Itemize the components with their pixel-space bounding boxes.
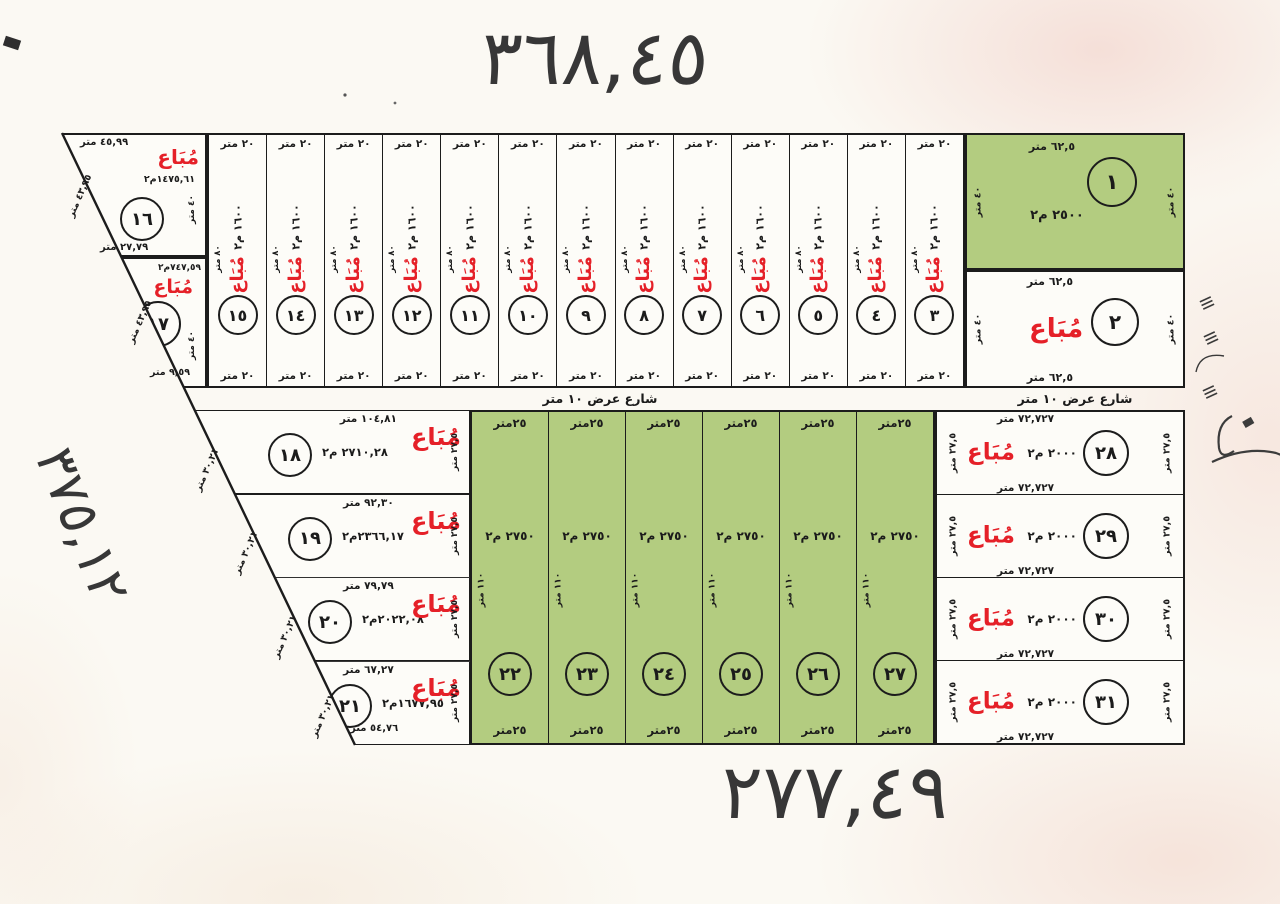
- sold-stamp: مُبَاع: [229, 256, 247, 294]
- sold-stamp: مُبَاع: [967, 691, 1015, 714]
- area-label: ٢٥٠٠ م٢: [987, 209, 1127, 222]
- area-label: ١٦٠٠ م٢: [639, 204, 650, 249]
- depth-label: ٨٠ متر: [678, 245, 687, 272]
- plot-30: ٣٠ ٢٠٠٠ م٢ مُبَاع ٢٧,٥ متر ٢٧,٥ متر ٧٢,٧…: [937, 577, 1183, 660]
- area-label: ٢٧٥٠ م٢: [549, 530, 625, 542]
- slant-length-label: ٤٣,٩٥ متر: [66, 173, 95, 219]
- area-label: ٢٧٥٠ م٢: [857, 530, 933, 542]
- plot-15: ٢٠ متر ١٦٠٠ م٢ مُبَاع ٨٠ متر ١٥ ٢٠ متر: [209, 135, 266, 386]
- slant-length-label: ٣٠,٢١ متر: [309, 693, 338, 739]
- plot-number-badge: ١٤: [276, 295, 316, 335]
- length-label: ٢٠ متر: [441, 139, 498, 150]
- length-label: ٢٠ متر: [848, 139, 905, 150]
- length-label: ٢٠ متر: [499, 139, 556, 150]
- area-label: ١٦٠٠ م٢: [871, 204, 882, 249]
- area-label: ٢٧١٠,٢٨ م٢: [322, 447, 388, 459]
- length-label: ٦٢,٥ متر: [985, 276, 1115, 287]
- sold-stamp: مُبَاع: [967, 608, 1015, 631]
- length-label: ٢٠ متر: [732, 371, 789, 382]
- side-length-label: ٤٠ متر: [188, 195, 197, 224]
- plot-31: ٣١ ٢٠٠٠ م٢ مُبَاع ٢٧,٥ متر ٢٧,٥ متر ٧٢,٧…: [937, 660, 1183, 743]
- length-label: ٢٠ متر: [732, 139, 789, 150]
- length-label: ٢٥متر: [703, 418, 779, 430]
- plot-number-badge: ٢٨: [1083, 430, 1129, 476]
- length-label: ٧٢,٧٢٧ متر: [937, 483, 1114, 494]
- length-label: ٢٠ متر: [383, 139, 440, 150]
- sold-stamp: مُبَاع: [809, 256, 827, 294]
- depth-label: ٨٠ متر: [562, 245, 571, 272]
- sold-stamp: مُبَاع: [925, 256, 943, 294]
- side-length-label: ٤٠ متر: [1167, 314, 1177, 345]
- side-length-label: ٢٧,٥ متر: [450, 600, 460, 638]
- length-label: ٢٠ متر: [848, 371, 905, 382]
- plot-number-badge: ٢١: [328, 684, 372, 728]
- length-label: ٧٢,٧٢٧ متر: [937, 649, 1114, 660]
- plot-number-badge: ٥: [798, 295, 838, 335]
- length-label: ٢٠ متر: [325, 371, 382, 382]
- sold-stamp: مُبَاع: [345, 256, 363, 294]
- plot-26: ٢٥متر ٢٧٥٠ م٢ ١١٠ متر ٢٦ ٢٥متر: [779, 412, 856, 743]
- south-boundary-length: ٢٧٧,٤٩: [632, 754, 1037, 830]
- area-label: ٢٠٠٠ م٢: [1027, 447, 1077, 459]
- top-strip-plots: ٢٠ متر ١٦٠٠ م٢ مُبَاع ٨٠ متر ١٥ ٢٠ متر ٢…: [207, 133, 965, 388]
- area-label: ١٦٠٠ م٢: [697, 204, 708, 249]
- plot-number-badge: ١٣: [334, 295, 374, 335]
- length-label: ٢٠ متر: [790, 139, 847, 150]
- depth-label: ٨٠ متر: [446, 245, 455, 272]
- depth-label: ٨٠ متر: [736, 245, 745, 272]
- green-strip-plots: ٢٥متر ٢٧٥٠ م٢ ١١٠ متر ٢٢ ٢٥متر ٢٥متر ٢٧٥…: [470, 410, 935, 745]
- depth-label: ٨٠ متر: [620, 245, 629, 272]
- length-label: ٢٥متر: [780, 725, 856, 737]
- sold-stamp: مُبَاع: [635, 256, 653, 294]
- side-length-label: ٢٧,٥ متر: [948, 682, 958, 722]
- subdivision-plan: ٣٦٨,٤٥ ٢٧٧,٤٩ ٣٧٥,١٢ ٢٠ متر ١٦٠٠ م٢ مُبَ…: [0, 0, 1280, 904]
- area-label: ٢٠٠٠ م٢: [1027, 613, 1077, 625]
- side-length-label: ٤٠ متر: [188, 331, 197, 360]
- plot-number-badge: ٨: [624, 295, 664, 335]
- handwritten-mark: [343, 93, 346, 96]
- length-label: ٢٠ متر: [557, 139, 614, 150]
- length-label: ٢٥متر: [549, 418, 625, 430]
- plot-11: ٢٠ متر ١٦٠٠ م٢ مُبَاع ٨٠ متر ١١ ٢٠ متر: [440, 135, 498, 386]
- length-label: ٢٠ متر: [383, 371, 440, 382]
- sold-stamp: مُبَاع: [693, 256, 711, 294]
- sold-stamp: مُبَاع: [157, 147, 199, 167]
- area-label: ٢٧٥٠ م٢: [703, 530, 779, 542]
- area-label: ١٦٠٠ م٢: [290, 204, 301, 249]
- plot-number-badge: ٧: [682, 295, 722, 335]
- length-label: ٢٧,٧٩ متر: [100, 243, 148, 253]
- plot-number-badge: ٢٧: [873, 652, 917, 696]
- length-label: ٦٢,٥ متر: [987, 141, 1117, 152]
- plot-number-badge: ١١: [450, 295, 490, 335]
- plot-28: ٧٢,٧٢٧ متر ٢٨ ٢٠٠٠ م٢ مُبَاع ٢٧,٥ متر ٢٧…: [937, 412, 1183, 494]
- area-label: ١٦٠٠ م٢: [929, 204, 940, 249]
- depth-label: ٨٠ متر: [504, 245, 513, 272]
- length-label: ٢٠ متر: [267, 139, 324, 150]
- plot-27: ٢٥متر ٢٧٥٠ م٢ ١١٠ متر ٢٧ ٢٥متر: [856, 412, 933, 743]
- depth-label: ١١٠ متر: [555, 573, 564, 607]
- plot-number-badge: ١٢: [392, 295, 432, 335]
- side-length-label: ٢٧,٥ متر: [1162, 599, 1172, 639]
- sold-stamp: مُبَاع: [967, 442, 1015, 465]
- side-length-label: ٢٧,٥ متر: [1162, 516, 1172, 556]
- length-label: ٢٠ متر: [790, 371, 847, 382]
- plot-number-badge: ٢٦: [796, 652, 840, 696]
- sold-stamp: مُبَاع: [403, 256, 421, 294]
- plot-9: ٢٠ متر ١٦٠٠ م٢ مُبَاع ٨٠ متر ٩ ٢٠ متر: [556, 135, 614, 386]
- plot-4: ٢٠ متر ١٦٠٠ م٢ مُبَاع ٨٠ متر ٤ ٢٠ متر: [847, 135, 905, 386]
- plot-number-badge: ٣٠: [1083, 596, 1129, 642]
- slant-length-label: ٣٠,٢١ متر: [271, 614, 300, 660]
- handwritten-tally-marks: [1196, 297, 1224, 398]
- area-label: ٧٤٧,٥٩م٢: [158, 264, 201, 273]
- depth-label: ٨٠ متر: [214, 245, 223, 272]
- plot-number-badge: ٢٠: [308, 600, 352, 644]
- area-label: ١٦٠٠ م٢: [755, 204, 766, 249]
- sold-stamp: مُبَاع: [1029, 316, 1083, 342]
- plot-25: ٢٥متر ٢٧٥٠ م٢ ١١٠ متر ٢٥ ٢٥متر: [702, 412, 779, 743]
- slant-length-label: ٣٠,٢١ متر: [232, 530, 261, 576]
- plot-number-badge: ٣: [914, 295, 954, 335]
- length-label: ٢٠ متر: [674, 371, 731, 382]
- length-label: ٧٢,٧٢٧ متر: [937, 732, 1114, 743]
- north-boundary-length: ٣٦٨,٤٥: [392, 20, 799, 96]
- plot-20: ٧٩,٧٩ متر ٢٠ ٢٠٢٢,٠٨م٢ مُبَاع ٢٧,٥ متر: [195, 577, 470, 661]
- area-label: ٢٣٦٦,١٧م٢: [342, 531, 404, 543]
- sold-stamp: مُبَاع: [867, 256, 885, 294]
- depth-label: ١١٠ متر: [786, 573, 795, 607]
- plot-number-badge: ٢٥: [719, 652, 763, 696]
- plot-5: ٢٠ متر ١٦٠٠ م٢ مُبَاع ٨٠ متر ٥ ٢٠ متر: [789, 135, 847, 386]
- plot-number-badge: ١٥: [218, 295, 258, 335]
- side-length-label: ٢٧,٥ متر: [948, 433, 958, 473]
- plot-number-badge: ١: [1087, 157, 1137, 207]
- plot-6: ٢٠ متر ١٦٠٠ م٢ مُبَاع ٨٠ متر ٦ ٢٠ متر: [731, 135, 789, 386]
- sold-stamp: مُبَاع: [967, 525, 1015, 548]
- slant-length-label: ٤٣,٩٥ متر: [126, 299, 155, 345]
- depth-label: ٨٠ متر: [388, 245, 397, 272]
- sold-stamp: مُبَاع: [153, 278, 193, 297]
- plot-2: ٦٢,٥ متر ٢ مُبَاع ٤٠ متر ٤٠ متر ٦٢,٥ متر: [965, 270, 1185, 388]
- plot-number-badge: ٤: [856, 295, 896, 335]
- side-length-label: ٢٧,٥ متر: [948, 599, 958, 639]
- length-label: ٢٥متر: [626, 418, 702, 430]
- handwritten-mark: [394, 102, 397, 105]
- side-length-label: ٢٧,٥ متر: [948, 516, 958, 556]
- plot-number-badge: ٩: [566, 295, 606, 335]
- length-label: ٢٥متر: [549, 725, 625, 737]
- side-length-label: ٢٧,٥ متر: [450, 433, 460, 471]
- area-label: ٢٧٥٠ م٢: [780, 530, 856, 542]
- length-label: ٢٥متر: [472, 725, 548, 737]
- plot-number-badge: ٢٩: [1083, 513, 1129, 559]
- length-label: ٢٠ متر: [616, 139, 673, 150]
- length-label: ٤٥,٩٩ متر: [80, 138, 128, 148]
- plot-8: ٢٠ متر ١٦٠٠ م٢ مُبَاع ٨٠ متر ٨ ٢٠ متر: [615, 135, 673, 386]
- length-label: ٢٠ متر: [267, 371, 324, 382]
- length-label: ٢٥متر: [857, 725, 933, 737]
- area-label: ١٦٠٠ م٢: [813, 204, 824, 249]
- plot-14: ٢٠ متر ١٦٠٠ م٢ مُبَاع ٨٠ متر ١٤ ٢٠ متر: [266, 135, 324, 386]
- plot-10: ٢٠ متر ١٦٠٠ م٢ مُبَاع ٨٠ متر ١٠ ٢٠ متر: [498, 135, 556, 386]
- plot-23: ٢٥متر ٢٧٥٠ م٢ ١١٠ متر ٢٣ ٢٥متر: [548, 412, 625, 743]
- length-label: ٢٠ متر: [441, 371, 498, 382]
- plot-number-badge: ١٠: [508, 295, 548, 335]
- street-label: شارع عرض ١٠ متر: [980, 391, 1170, 406]
- length-label: ٢٠ متر: [616, 371, 673, 382]
- side-length-label: ٢٧,٥ متر: [1162, 433, 1172, 473]
- depth-label: ٨٠ متر: [272, 245, 281, 272]
- area-label: ٢٠٠٠ م٢: [1027, 696, 1077, 708]
- plot-29: ٢٩ ٢٠٠٠ م٢ مُبَاع ٢٧,٥ متر ٢٧,٥ متر ٧٢,٧…: [937, 494, 1183, 577]
- side-length-label: ٤٠ متر: [974, 314, 984, 345]
- length-label: ٦٢,٥ متر: [985, 372, 1115, 383]
- length-label: ٥٤,٧٦ متر: [350, 724, 398, 734]
- length-label: ٢٠ متر: [557, 371, 614, 382]
- length-label: ٢٠ متر: [906, 139, 963, 150]
- length-label: ٩,٥٩ متر: [150, 368, 190, 378]
- depth-label: ٨٠ متر: [795, 245, 804, 272]
- side-length-label: ٢٧,٥ متر: [1162, 682, 1172, 722]
- slant-length-label: ٣٠,٢١ متر: [193, 447, 222, 493]
- side-length-label: ٢٧,٥ متر: [450, 684, 460, 722]
- side-length-label: ٢٧,٥ متر: [450, 517, 460, 555]
- depth-label: ٨٠ متر: [911, 245, 920, 272]
- plot-22: ٢٥متر ٢٧٥٠ م٢ ١١٠ متر ٢٢ ٢٥متر: [472, 412, 548, 743]
- handwritten-mark: [1212, 416, 1280, 462]
- length-label: ٧٢,٧٢٧ متر: [937, 566, 1114, 577]
- length-label: ٢٠ متر: [674, 139, 731, 150]
- area-label: ١٦٠٠ م٢: [581, 204, 592, 249]
- length-label: ٢٠ متر: [209, 139, 266, 150]
- length-label: ٢٠ متر: [325, 139, 382, 150]
- area-label: ١٦٠٠ م٢: [464, 204, 475, 249]
- depth-label: ٨٠ متر: [853, 245, 862, 272]
- area-label: ١٦٠٠ م٢: [232, 204, 243, 249]
- handwritten-mark: [3, 36, 21, 50]
- plot-24: ٢٥متر ٢٧٥٠ م٢ ١١٠ متر ٢٤ ٢٥متر: [625, 412, 702, 743]
- area-label: ٢٠٠٠ م٢: [1027, 530, 1077, 542]
- sold-stamp: مُبَاع: [461, 256, 479, 294]
- right-block-plots: ٧٢,٧٢٧ متر ٢٨ ٢٠٠٠ م٢ مُبَاع ٢٧,٥ متر ٢٧…: [935, 410, 1185, 745]
- street-label: شارع عرض ١٠ متر: [480, 391, 720, 406]
- side-length-label: ٤٠ متر: [1167, 186, 1177, 217]
- plot-number-badge: ٦: [740, 295, 780, 335]
- length-label: ٢٥متر: [857, 418, 933, 430]
- length-label: ٢٠ متر: [906, 371, 963, 382]
- plot-number-badge: ٢٤: [642, 652, 686, 696]
- area-label: ١٦٠٠ م٢: [522, 204, 533, 249]
- plot-number-badge: ٣١: [1083, 679, 1129, 725]
- sold-stamp: مُبَاع: [751, 256, 769, 294]
- depth-label: ١١٠ متر: [863, 573, 872, 607]
- plot-number-badge: ١٩: [288, 517, 332, 561]
- plot-12: ٢٠ متر ١٦٠٠ م٢ مُبَاع ٨٠ متر ١٢ ٢٠ متر: [382, 135, 440, 386]
- depth-label: ١١٠ متر: [709, 573, 718, 607]
- area-label: ١٦٠٠ م٢: [406, 204, 417, 249]
- plot-18: ١٠٤,٨١ متر ١٨ ٢٧١٠,٢٨ م٢ مُبَاع ٢٧,٥ متر: [195, 410, 470, 494]
- length-label: ٢٠ متر: [209, 371, 266, 382]
- area-label: ١٤٧٥,٦١م٢: [144, 175, 195, 185]
- area-label: ٢٧٥٠ م٢: [626, 530, 702, 542]
- sold-stamp: مُبَاع: [519, 256, 537, 294]
- plot-number-badge: ١٦: [120, 197, 164, 241]
- depth-label: ٨٠ متر: [330, 245, 339, 272]
- plot-number-badge: ٢٣: [565, 652, 609, 696]
- depth-label: ١١٠ متر: [478, 573, 487, 607]
- plot-7: ٢٠ متر ١٦٠٠ م٢ مُبَاع ٨٠ متر ٧ ٢٠ متر: [673, 135, 731, 386]
- side-length-label: ٤٠ متر: [974, 186, 984, 217]
- plot-number-badge: ٢٢: [488, 652, 532, 696]
- length-label: ٧٢,٧٢٧ متر: [937, 414, 1114, 425]
- sold-stamp: مُبَاع: [577, 256, 595, 294]
- sold-stamp: مُبَاع: [287, 256, 305, 294]
- area-label: ١٦٠٠ م٢: [348, 204, 359, 249]
- west-boundary-length: ٣٧٥,١٢: [0, 378, 164, 671]
- plot-3: ٢٠ متر ١٦٠٠ م٢ مُبَاع ٨٠ متر ٣ ٢٠ متر: [905, 135, 963, 386]
- plot-1: ٦٢,٥ متر ١ ٢٥٠٠ م٢ ٤٠ متر ٤٠ متر: [965, 133, 1185, 270]
- length-label: ٢٥متر: [472, 418, 548, 430]
- length-label: ٢٥متر: [703, 725, 779, 737]
- length-label: ٢٥متر: [780, 418, 856, 430]
- plot-number-badge: ١٨: [268, 433, 312, 477]
- area-label: ٢٧٥٠ م٢: [472, 530, 548, 542]
- length-label: ٢٠ متر: [499, 371, 556, 382]
- plot-number-badge: ٢: [1091, 298, 1139, 346]
- depth-label: ١١٠ متر: [632, 573, 641, 607]
- plot-13: ٢٠ متر ١٦٠٠ م٢ مُبَاع ٨٠ متر ١٣ ٢٠ متر: [324, 135, 382, 386]
- length-label: ٢٥متر: [626, 725, 702, 737]
